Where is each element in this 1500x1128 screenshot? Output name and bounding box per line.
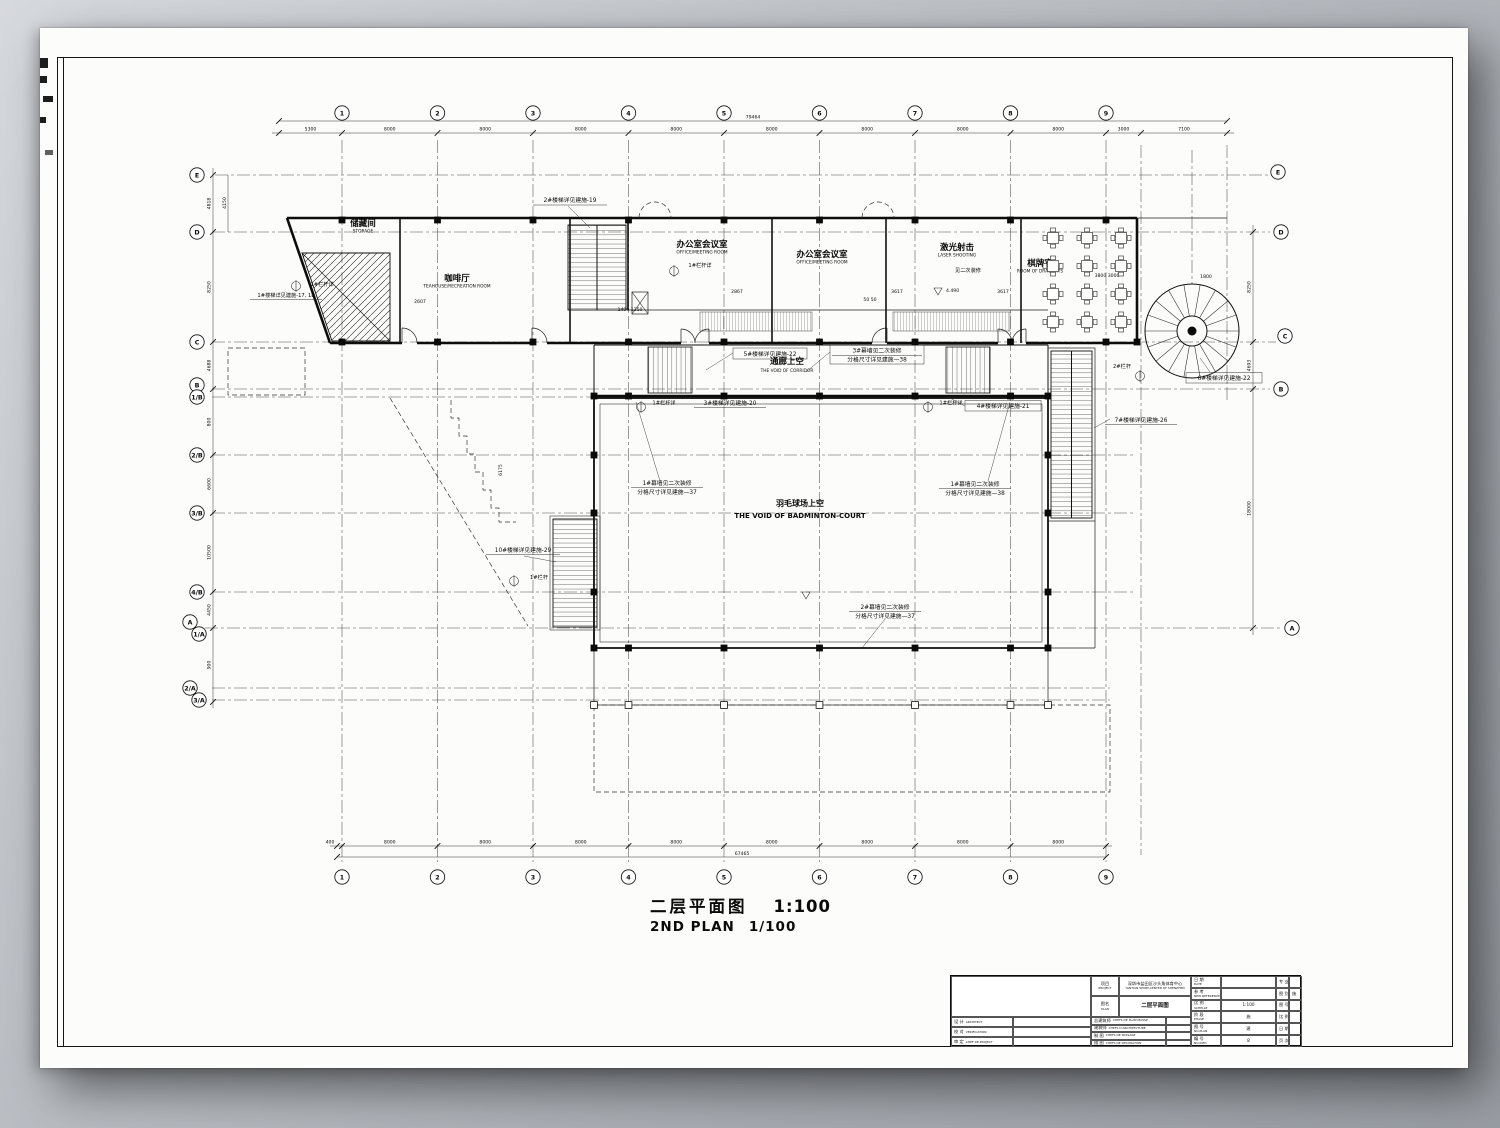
svg-text:D: D <box>1278 229 1283 236</box>
svg-text:18000: 18000 <box>1247 501 1253 516</box>
note-cw1b-line2: 分格尺寸详见建施—38 <box>945 489 1005 497</box>
stair-10 <box>553 519 597 627</box>
note-cw1-line2: 分格尺寸详见建施—37 <box>637 488 697 496</box>
svg-text:8000: 8000 <box>479 127 491 133</box>
stair-4 <box>946 347 990 393</box>
svg-text:8000: 8000 <box>861 127 873 133</box>
svg-text:8000: 8000 <box>1052 127 1064 133</box>
svg-text:4693: 4693 <box>1247 360 1253 372</box>
tb-meta-value: 施 <box>1221 1011 1276 1023</box>
svg-text:8000: 8000 <box>957 840 969 846</box>
svg-text:8000: 8000 <box>575 840 587 846</box>
tb-sig-label: 审 定CHEF DE PROJECT <box>951 1037 1013 1047</box>
note-decor: 见二次装修 <box>955 266 982 274</box>
svg-text:900: 900 <box>207 661 213 670</box>
room-storage-zh: 储藏间 <box>349 218 376 229</box>
note-stair5: 5#楼梯详见建施-22 <box>744 350 797 358</box>
plan-dim: 6175 <box>498 464 504 476</box>
svg-text:79464: 79464 <box>746 115 761 121</box>
svg-text:7100: 7100 <box>1178 127 1190 133</box>
balustrade-hatch <box>700 312 812 331</box>
svg-text:10500: 10500 <box>207 545 213 560</box>
tb-side-value <box>1289 1035 1302 1047</box>
note-boxes <box>250 205 1262 612</box>
room-court-zh: 羽毛球场上空 <box>776 498 824 508</box>
room-office2-en: OFFICE/MEETING ROOM <box>796 260 847 266</box>
svg-text:3: 3 <box>531 874 535 881</box>
tb-sig-value <box>1013 1027 1091 1037</box>
svg-text:B: B <box>1279 386 1284 393</box>
tb-project-name: 深圳市盐田区沙头角体育中心YANTIAN SPORT-CENTER OF SHE… <box>1119 976 1191 996</box>
title-block-blank <box>951 976 1091 1017</box>
tb-side-label: 页 次 <box>1276 1035 1289 1047</box>
svg-text:A: A <box>188 619 193 626</box>
svg-text:8000: 8000 <box>861 840 873 846</box>
drawing-scale-en: 1/100 <box>749 919 797 935</box>
note-cw3-line2: 分格尺寸详见建施—38 <box>847 356 907 364</box>
svg-text:E: E <box>195 172 199 179</box>
tb-sig-label: 设 计ARCHITECT <box>951 1017 1013 1027</box>
page-background: { "page": { "drawing_title_zh": "二层平面图",… <box>0 0 1500 1128</box>
svg-text:8000: 8000 <box>1052 840 1064 846</box>
svg-text:3: 3 <box>531 110 535 117</box>
tb-meta-label: 阶 段PHASE <box>1191 1011 1221 1023</box>
tb-project-label: 项目PROJECT <box>1091 976 1119 996</box>
tb-role-value <box>1166 1025 1191 1033</box>
tb-meta-label: 日 期DATE <box>1191 976 1221 988</box>
note-stair10: 10#楼梯详见建施-29 <box>495 546 552 554</box>
note-rail1: 1#栏杆详 <box>939 399 962 407</box>
svg-text:5300: 5300 <box>305 127 317 133</box>
tb-meta-label: 图 号NO.PLAN <box>1191 1023 1221 1035</box>
level-marks: 4.490 <box>802 288 959 599</box>
svg-text:8000: 8000 <box>384 127 396 133</box>
room-office1-en: OFFICE/MEETING ROOM <box>676 250 727 256</box>
svg-text:C: C <box>195 339 200 346</box>
note-rail1: 1#栏杆详 <box>652 399 675 407</box>
tb-role-value <box>1166 1032 1191 1040</box>
stair-3 <box>648 347 692 393</box>
tb-sig-value <box>1013 1017 1091 1027</box>
svg-text:8000: 8000 <box>384 840 396 846</box>
note-stair6: 6#楼梯详见建施-22 <box>1198 374 1251 382</box>
note-rail1s: 1#栏杆 <box>530 573 548 581</box>
plan-dim: 2867 <box>731 289 743 295</box>
tb-meta-label: 比 例SCHELLE <box>1191 1000 1221 1012</box>
svg-text:9: 9 <box>1104 110 1108 117</box>
note-stair4: 4#楼梯详见建施-21 <box>977 402 1030 410</box>
svg-text:E: E <box>1276 169 1280 176</box>
leader-lines <box>524 206 1210 648</box>
drawing-title-line2: 2ND PLAN1/100 <box>650 919 831 935</box>
balustrade-hatch <box>893 312 1010 331</box>
plan-dim: 3617 <box>891 289 903 295</box>
tb-role-value <box>1166 1040 1191 1048</box>
svg-text:8000: 8000 <box>766 127 778 133</box>
svg-text:8000: 8000 <box>766 840 778 846</box>
svg-text:8000: 8000 <box>479 840 491 846</box>
note-rail2: 2#栏杆 <box>1113 362 1131 370</box>
svg-text:800: 800 <box>207 418 213 427</box>
room-corridor-en: THE VOID OF CORRIDOR <box>760 368 814 374</box>
drawing-title-en: 2ND PLAN <box>650 919 735 935</box>
svg-text:6: 6 <box>817 874 822 881</box>
tb-meta-value: 1:100 <box>1221 1000 1276 1012</box>
svg-text:3/A: 3/A <box>193 697 205 704</box>
tb-plan-name: 二层平面图 <box>1119 996 1191 1017</box>
annotation-notes: 2#楼梯详见建施-19 1#楼梯详见建施-17, 18 1#栏杆详 1#栏杆详 … <box>257 196 1250 620</box>
note-cw3-line1: 3#幕墙见二次装修 <box>852 347 901 355</box>
svg-text:8000: 8000 <box>670 840 682 846</box>
room-storage-en: STORAGE <box>353 229 374 235</box>
svg-text:A: A <box>1290 625 1295 632</box>
svg-text:5: 5 <box>722 874 726 881</box>
tb-role-label: 建筑师CHEFS D'ARCHITECTURE <box>1091 1025 1166 1033</box>
card-tables <box>1043 228 1131 332</box>
plan-dim: 3617 <box>997 289 1009 295</box>
svg-text:8: 8 <box>1008 874 1012 881</box>
note-rail1: 1#栏杆详 <box>688 261 711 269</box>
plan-dim: 3800 3000 <box>1095 273 1120 279</box>
note-cw2-line1: 2#幕墙见二次装修 <box>860 603 909 611</box>
drawing-scale: 1:100 <box>774 897 832 916</box>
svg-text:7: 7 <box>913 110 917 117</box>
svg-text:67465: 67465 <box>735 851 750 857</box>
svg-text:8000: 8000 <box>670 127 682 133</box>
room-office1-zh: 办公室会议室 <box>676 239 728 250</box>
tb-sig-value <box>1013 1037 1091 1047</box>
svg-text:4/B: 4/B <box>191 589 203 596</box>
tb-side-label: 日 期 <box>1276 1023 1289 1035</box>
plan-dim: 2607 <box>414 299 426 305</box>
svg-text:8000: 8000 <box>575 127 587 133</box>
svg-text:1/B: 1/B <box>191 394 203 401</box>
plan-dim: 1800 <box>1200 274 1212 280</box>
drawing-title-zh: 二层平面图 <box>650 897 748 916</box>
room-court-en: THE VOID OF BADMINTON-COURT <box>734 512 865 520</box>
tb-meta-value <box>1221 988 1276 1000</box>
tb-meta-label: 编 号NO.INFO <box>1191 1035 1221 1047</box>
tb-side-label: 图 号 <box>1276 1000 1289 1012</box>
tb-side-value: 施 <box>1289 988 1302 1000</box>
tb-side-value <box>1289 1000 1302 1012</box>
level-value: 4.490 <box>946 288 959 294</box>
svg-text:6: 6 <box>817 110 822 117</box>
tb-role-label: 描 图CHEFS DE DECORATION <box>1091 1040 1166 1048</box>
svg-text:4818: 4818 <box>207 198 213 210</box>
tb-sig-label: 校 对VERIFICATION <box>951 1027 1013 1037</box>
svg-text:400: 400 <box>326 840 335 846</box>
note-stair2: 2#楼梯详见建施-19 <box>544 196 597 204</box>
svg-text:2/B: 2/B <box>191 452 203 459</box>
note-stair3: 3#楼梯详见建施-20 <box>704 399 757 407</box>
svg-text:8: 8 <box>1008 110 1012 117</box>
plan-dim: 50 50 <box>863 297 876 303</box>
tb-meta-value: 建 <box>1221 1023 1276 1035</box>
tb-side-label: 比 例 <box>1276 1011 1289 1023</box>
drawing-title-line1: 二层平面图1:100 <box>650 893 831 917</box>
tb-meta-value <box>1221 976 1276 988</box>
room-cafe-en: TEAHOUSE/RECREATION ROOM <box>422 284 491 290</box>
title-block: 设 计ARCHITECT 校 对VERIFICATION 审 定CHEF DE … <box>950 975 1301 1046</box>
svg-text:1: 1 <box>340 874 344 881</box>
tb-plan-label: 图名PLAN <box>1091 996 1119 1017</box>
svg-text:4: 4 <box>626 874 631 881</box>
room-office2-zh: 办公室会议室 <box>796 249 848 260</box>
room-cafe-zh: 咖啡厅 <box>444 273 470 284</box>
note-cw1-line1: 1#幕墙见二次装修 <box>642 479 691 487</box>
note-cw1b-line1: 1#幕墙见二次装修 <box>950 480 999 488</box>
note-rail1: 1#栏杆详 <box>310 280 333 288</box>
tb-role-value <box>1166 1017 1191 1025</box>
tb-side-value <box>1289 1011 1302 1023</box>
svg-text:8250: 8250 <box>207 281 213 293</box>
svg-text:4150: 4150 <box>222 197 228 209</box>
svg-text:1: 1 <box>340 110 344 117</box>
tb-role-label: 制 图CHEFS DE PASSAGE <box>1091 1032 1166 1040</box>
svg-text:3000: 3000 <box>1118 127 1130 133</box>
svg-text:2: 2 <box>435 874 439 881</box>
tb-meta-value: 8 <box>1221 1035 1276 1047</box>
svg-text:4: 4 <box>626 110 631 117</box>
svg-text:4450: 4450 <box>207 604 213 616</box>
room-laser-en: LASER SHOOTING <box>938 253 976 259</box>
svg-text:4688: 4688 <box>207 360 213 372</box>
svg-text:2/A: 2/A <box>184 685 196 692</box>
svg-text:8250: 8250 <box>1247 281 1253 293</box>
svg-text:8000: 8000 <box>957 127 969 133</box>
tb-side-value <box>1289 976 1302 988</box>
svg-text:9: 9 <box>1104 874 1108 881</box>
svg-text:3/B: 3/B <box>191 510 203 517</box>
svg-text:D: D <box>194 229 199 236</box>
svg-text:C: C <box>1283 333 1288 340</box>
room-laser-zh: 激光射击 <box>940 242 975 253</box>
tb-meta-label: 参 考NEW REFERENCE <box>1191 988 1221 1000</box>
note-stair7: 7#楼梯详见建施-26 <box>1115 416 1168 424</box>
drawing-title: 二层平面图1:100 2ND PLAN1/100 <box>650 893 831 935</box>
svg-text:B: B <box>195 382 200 389</box>
floor-plan-drawing: 4.490 储藏间 STORAGE 咖啡厅 TEAHOUSE/RECREATIO… <box>0 0 1500 1128</box>
svg-text:2: 2 <box>435 110 439 117</box>
svg-text:6600: 6600 <box>207 478 213 490</box>
note-cw2-line2: 分格尺寸详见建施—37 <box>855 612 915 620</box>
plan-dim: 1400 1250 <box>618 307 643 313</box>
svg-text:5: 5 <box>722 110 726 117</box>
tb-side-value <box>1289 1023 1302 1035</box>
tb-role-label: 总建筑师CHEFS DE PLAN MASSE <box>1091 1017 1166 1025</box>
note-stair1: 1#楼梯详见建施-17, 18 <box>257 291 314 299</box>
tb-side-label: 图 别 <box>1276 988 1289 1000</box>
svg-text:1/A: 1/A <box>193 631 205 638</box>
tb-side-label: 专 业 <box>1276 976 1289 988</box>
svg-text:7: 7 <box>913 874 917 881</box>
